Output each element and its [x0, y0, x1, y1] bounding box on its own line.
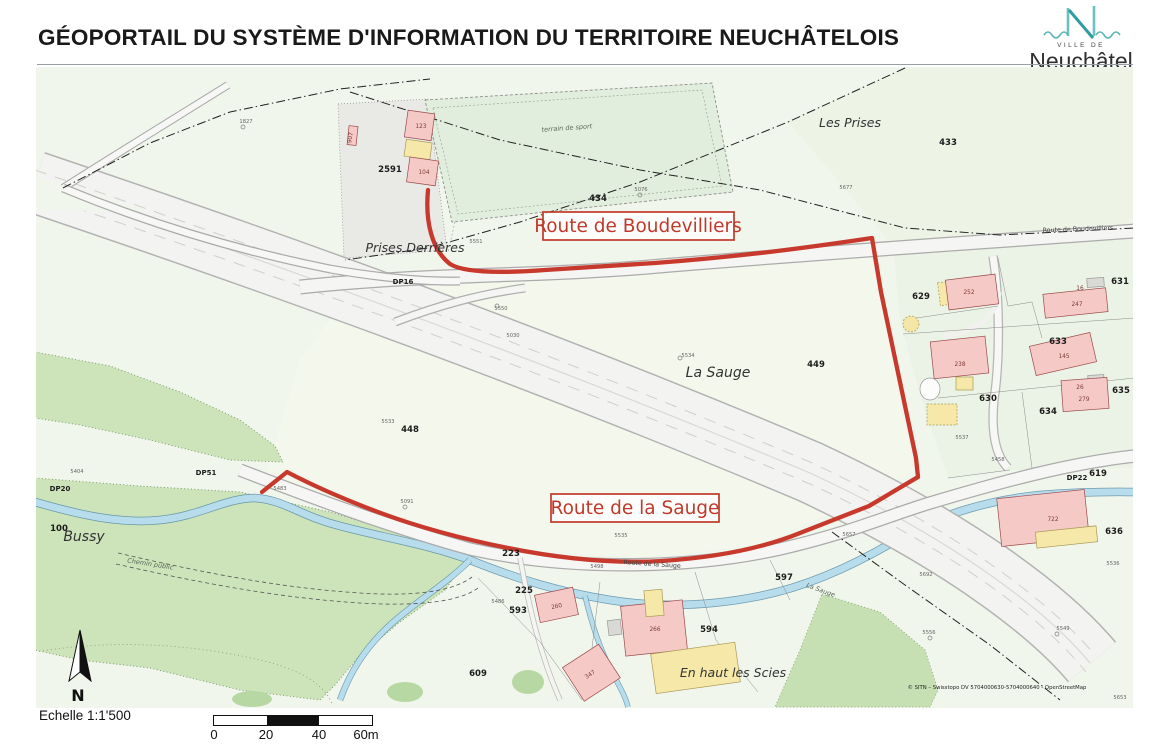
parcel-631: 631	[1111, 277, 1129, 287]
parcel-635: 635	[1112, 386, 1130, 396]
point-1827: 1827	[239, 119, 252, 125]
parcel-636: 636	[1105, 527, 1123, 537]
point-5551: 5551	[469, 239, 482, 245]
point-5486: 5486	[491, 599, 504, 605]
north-arrow-label: N	[71, 686, 84, 705]
bush	[232, 691, 272, 707]
parcel-634: 634	[1039, 407, 1057, 417]
building	[1087, 277, 1105, 287]
point-5535: 5535	[614, 533, 627, 539]
route-label-boudevilliers-text: Route de Boudevilliers	[534, 216, 742, 237]
scale-bar	[213, 715, 373, 726]
parcel-609: 609	[469, 669, 487, 679]
parcel-633: 633	[1049, 337, 1067, 347]
building-266: 266	[649, 627, 660, 633]
road-id-dp16: DP16	[393, 278, 414, 286]
point-5556: 5556	[922, 630, 935, 636]
parcel-433: 433	[939, 138, 957, 148]
building-145: 145	[1058, 354, 1069, 360]
bush	[387, 682, 423, 702]
point-5653: 5653	[1113, 695, 1126, 701]
point-5458: 5458	[991, 457, 1004, 463]
road-id-dp20: DP20	[50, 485, 71, 493]
building	[1061, 377, 1109, 411]
point-5483: 5483	[273, 486, 286, 492]
scale-tick-20: 20	[259, 727, 273, 742]
building	[607, 619, 622, 635]
parcel-630: 630	[979, 394, 997, 404]
building-238: 238	[954, 362, 965, 368]
scale-segment	[319, 716, 372, 725]
parcel-434: 434	[589, 194, 607, 204]
label-bussy: Bussy	[63, 529, 105, 545]
building-26: 26	[1076, 385, 1084, 391]
pool	[920, 378, 940, 400]
road-id-dp22: DP22	[1067, 474, 1088, 482]
scale-tick-0: 0	[210, 727, 217, 742]
route-label-sauge: Route de la Sauge	[551, 494, 720, 522]
building-16: 16	[1076, 286, 1084, 292]
point-5076: 5076	[634, 187, 647, 193]
building-252: 252	[963, 290, 974, 296]
parcel-593: 593	[509, 606, 527, 616]
building-247: 247	[1071, 302, 1082, 308]
point-5536: 5536	[1106, 561, 1119, 567]
point-5091: 5091	[400, 499, 413, 505]
scale-segment	[267, 716, 320, 725]
parcel-597: 597	[775, 573, 793, 583]
building	[927, 404, 957, 425]
label-prises-derrieres: Prises Derrières	[366, 240, 465, 255]
route-label-boudevilliers: Route de Boudevilliers	[534, 212, 742, 240]
map-canvas: Route de Boudevilliers Route de la Sauge…	[0, 0, 1170, 748]
parcel-223: 223	[502, 549, 520, 559]
point-5498: 5498	[590, 564, 603, 570]
parcel-619: 619	[1089, 469, 1107, 479]
building	[644, 589, 664, 616]
label-les-prises: Les Prises	[819, 115, 881, 130]
point-5677: 5677	[839, 185, 852, 191]
scale-segment	[214, 716, 267, 725]
parcel-225: 225	[515, 586, 533, 596]
scale-tick-40: 40	[312, 727, 326, 742]
point-5534: 5534	[681, 353, 695, 359]
point-5030: 5030	[506, 333, 519, 339]
scale-tick-60m: 60m	[353, 727, 378, 742]
label-en-haut-les-scies: En haut les Scies	[680, 665, 787, 680]
building-279: 279	[1078, 397, 1089, 403]
parcel-100: 100	[50, 524, 68, 534]
geoportal-export-page: GÉOPORTAIL DU SYSTÈME D'INFORMATION DU T…	[0, 0, 1170, 748]
scale-label: Echelle 1:1'500	[39, 708, 131, 723]
parcel-449: 449	[807, 360, 825, 370]
point-5692: 5692	[919, 572, 932, 578]
building-123: 123	[415, 124, 426, 130]
building-104: 104	[418, 170, 429, 176]
round-structure	[903, 316, 919, 332]
point-5657: 5657	[842, 532, 855, 538]
building	[930, 336, 989, 379]
building	[956, 377, 973, 390]
road-id-dp51: DP51	[196, 469, 217, 477]
building	[404, 139, 432, 159]
point-5550: 5550	[494, 306, 507, 312]
route-label-sauge-text: Route de la Sauge	[551, 498, 720, 519]
building-722: 722	[1047, 517, 1058, 523]
point-5533: 5533	[381, 419, 394, 425]
label-la-sauge: La Sauge	[686, 365, 751, 381]
bush	[512, 670, 544, 694]
point-5549: 5549	[1056, 626, 1069, 632]
attribution-text: © SITN – Swisstopo DV 5704000630-5704000…	[908, 684, 1087, 691]
parcel-448: 448	[401, 425, 419, 435]
parcel-2591: 2591	[378, 165, 402, 175]
parcel-629: 629	[912, 292, 930, 302]
parcel-594: 594	[700, 625, 718, 635]
point-5404: 5404	[70, 469, 84, 475]
point-5537: 5537	[955, 435, 968, 441]
